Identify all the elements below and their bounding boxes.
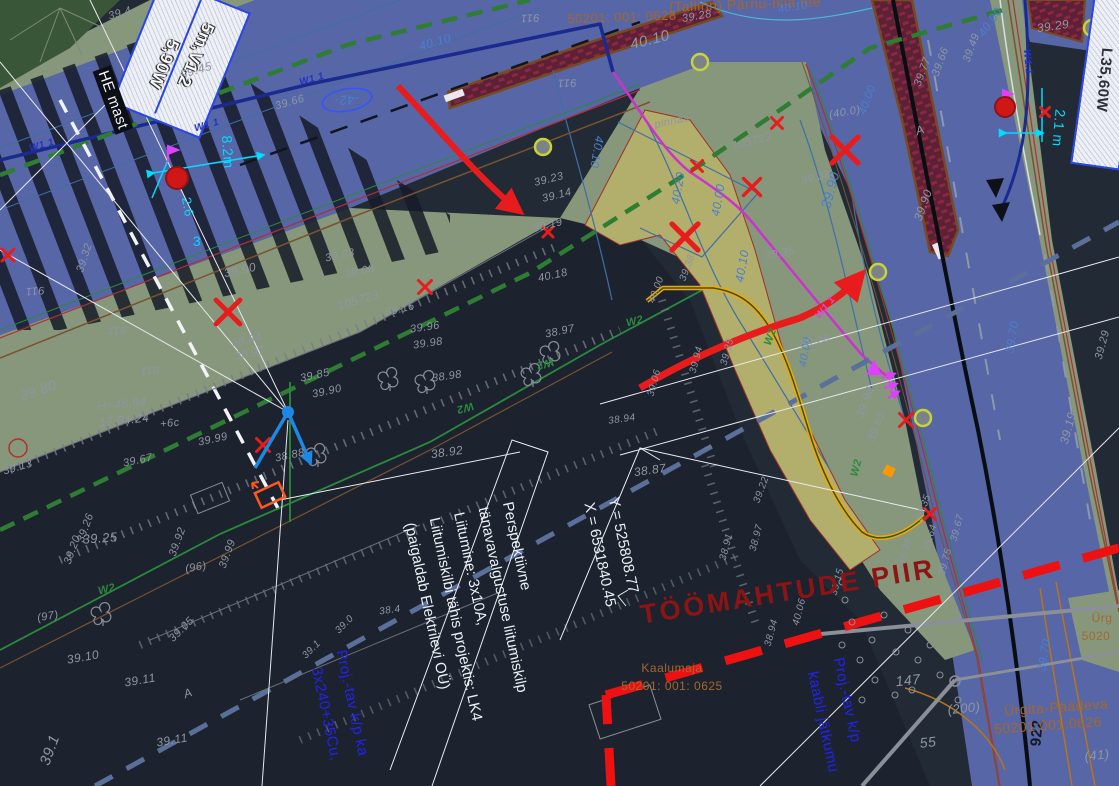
bush-icon xyxy=(937,672,943,678)
bush-icon xyxy=(842,597,848,603)
bush-icon xyxy=(915,657,921,663)
luminaire-icon xyxy=(166,167,188,189)
bush-icon xyxy=(869,637,875,643)
cad-viewport[interactable]: (Tallinn) Pärnu-Ikla tee50201: 001: 0628… xyxy=(0,0,1119,786)
luminaire-icon xyxy=(995,97,1015,117)
bush-icon xyxy=(881,612,887,618)
tree-ring-icon xyxy=(915,410,931,426)
tree-ring-icon xyxy=(692,54,708,70)
tree-ring-icon xyxy=(870,264,886,280)
bush-icon xyxy=(839,579,845,585)
bush-icon xyxy=(905,627,911,633)
power-pole-icon xyxy=(282,406,294,418)
bush-icon xyxy=(892,692,898,698)
tree-ring-icon xyxy=(535,139,551,155)
